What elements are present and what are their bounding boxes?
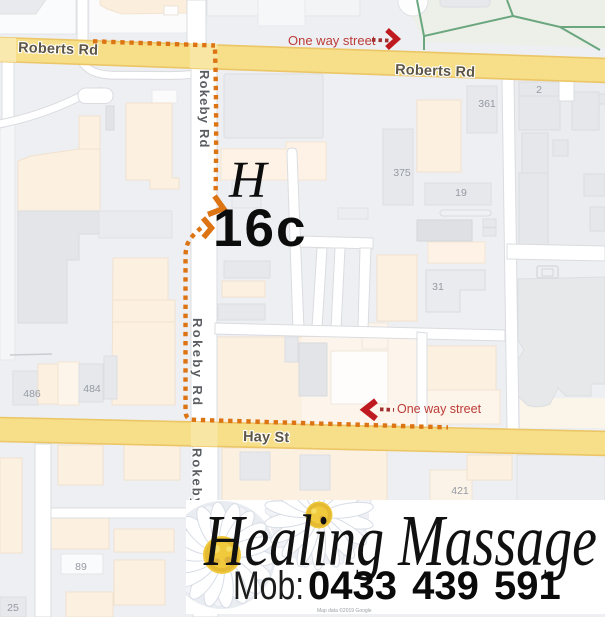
svg-text:484: 484 — [83, 383, 101, 395]
svg-text:Roberts Rd: Roberts Rd — [395, 62, 476, 81]
svg-text:16c: 16c — [213, 199, 307, 258]
svg-text:89: 89 — [75, 561, 87, 573]
svg-text:25: 25 — [7, 602, 19, 614]
svg-text:Rokeby: Rokeby — [190, 448, 205, 507]
svg-text:Rokeby Rd: Rokeby Rd — [197, 70, 212, 149]
svg-text:Mob:: Mob: — [233, 563, 304, 608]
svg-text:Hay St: Hay St — [243, 429, 290, 446]
svg-text:One way street: One way street — [288, 33, 376, 48]
svg-text:31: 31 — [432, 281, 444, 293]
svg-text:0433 439 591: 0433 439 591 — [308, 564, 561, 608]
svg-text:375: 375 — [393, 167, 411, 179]
svg-text:486: 486 — [23, 388, 41, 400]
svg-text:2: 2 — [536, 84, 542, 96]
svg-text:Rokeby Rd: Rokeby Rd — [190, 318, 205, 408]
svg-text:421: 421 — [451, 485, 469, 497]
svg-text:Roberts Rd: Roberts Rd — [18, 40, 99, 59]
svg-text:One way street: One way street — [397, 402, 482, 416]
svg-text:19: 19 — [455, 187, 467, 199]
svg-text:361: 361 — [478, 98, 496, 110]
svg-text:Map data ©2019 Google: Map data ©2019 Google — [317, 607, 372, 614]
